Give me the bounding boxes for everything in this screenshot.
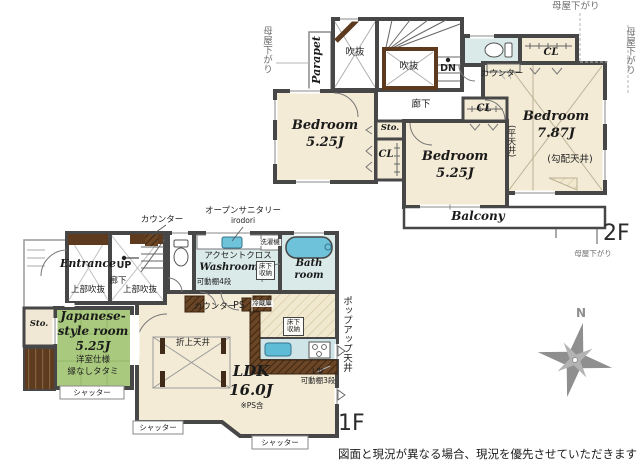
accent-cloth-label: アクセントクロス bbox=[204, 252, 272, 261]
open-sanitary-sub-label: irodori bbox=[231, 217, 255, 225]
toilet-icon-2f bbox=[485, 43, 512, 57]
l-shelf-label1: L型 bbox=[312, 368, 324, 376]
floor2-label: 2F bbox=[603, 222, 630, 245]
bedroom1-size: 5.25J bbox=[306, 136, 344, 150]
ldk-name: LDK bbox=[233, 364, 270, 380]
compass-north-label: N bbox=[576, 307, 586, 320]
l-shelf-label2: 可動棚3段 bbox=[301, 377, 336, 385]
bath-label2: room bbox=[294, 271, 323, 282]
void2-label: 吹抜 bbox=[399, 62, 418, 72]
bedroom3-size: 7.87J bbox=[537, 127, 575, 141]
sto-1f-label: Sto. bbox=[30, 320, 49, 329]
dn-label: DN bbox=[440, 64, 456, 74]
cl-mid-label: CL bbox=[477, 104, 492, 115]
shutter1-label: シャッター bbox=[73, 389, 111, 397]
washbasin-icon bbox=[222, 237, 242, 248]
compass-icon bbox=[530, 315, 620, 405]
counter-mid-label: カウンター bbox=[194, 303, 237, 312]
floorplan-canvas: 母屋下がり Parapet 吹抜 吹抜 DN 母屋下がり 母屋下がり CL カウ… bbox=[0, 0, 640, 466]
ldk-size: 16.0J bbox=[229, 383, 273, 399]
moya-right-label: 母屋下がり bbox=[624, 27, 634, 75]
moya-left-label: 母屋下がり bbox=[261, 26, 271, 74]
bedroom2-name: Bedroom bbox=[422, 150, 488, 164]
japanese-sub2: 縁なしタタミ bbox=[67, 368, 118, 377]
moya-bottom-label: 母屋下がり bbox=[574, 250, 612, 258]
open-sanitary-label: オープンサニタリー bbox=[205, 207, 281, 216]
bedroom3-name: Bedroom bbox=[523, 110, 589, 124]
japanese-sub1: 洋室仕様 bbox=[76, 356, 110, 365]
floor1-label: 1F bbox=[338, 412, 365, 435]
sloped-ceiling-label: (勾配天井) bbox=[547, 155, 592, 165]
parapet-label: Parapet bbox=[311, 36, 323, 84]
shelf4-label: 可動棚4段 bbox=[197, 278, 232, 286]
void-above2-label: 上部吹抜 bbox=[123, 286, 157, 295]
wood-deck bbox=[24, 348, 55, 390]
shutter2-label: シャッター bbox=[139, 424, 177, 432]
counter-top-box bbox=[145, 234, 158, 246]
counter-top-1f-label: カウンター bbox=[141, 216, 184, 225]
shutter3-label: シャッター bbox=[261, 439, 299, 447]
entrance-label: Entrance bbox=[60, 258, 116, 270]
up-label: UP bbox=[117, 261, 132, 271]
japanese-name1: Japanese- bbox=[60, 310, 125, 323]
fridge-label: 冷蔵庫 bbox=[251, 300, 273, 307]
ldk-note: ※PS含 bbox=[240, 402, 263, 410]
japanese-size: 5.25J bbox=[76, 340, 111, 353]
bedroom2-size: 5.25J bbox=[436, 167, 474, 181]
cl-top-label: CL bbox=[544, 48, 559, 59]
underfloor-storage2-label: 床下 収納 bbox=[283, 317, 304, 336]
void1-label: 吹抜 bbox=[345, 48, 364, 58]
bedroom1-name: Bedroom bbox=[292, 119, 358, 133]
kitchen-sink-icon bbox=[265, 343, 291, 356]
void-above1-label: 上部吹抜 bbox=[71, 286, 105, 295]
flat-ceiling-label: (平天井) bbox=[506, 125, 515, 157]
disclaimer-text: 図面と現況が異なる場合、現況を優先させていただきます bbox=[338, 446, 637, 462]
toilet-icon-1f bbox=[174, 240, 188, 266]
counter-2f-label: カウンター bbox=[481, 70, 524, 79]
hall-2f-label: 廊下 bbox=[411, 100, 430, 110]
bath-label1: Bath bbox=[296, 259, 323, 270]
room-bedroom2 bbox=[404, 121, 507, 207]
japanese-name2: style room bbox=[58, 325, 129, 338]
coffered-ceiling-label: 折上天井 bbox=[176, 339, 210, 348]
shoe-closet bbox=[68, 234, 108, 245]
ps-label: PS bbox=[233, 301, 245, 311]
washroom-label: Washroom bbox=[200, 263, 259, 274]
balcony-label: Balcony bbox=[451, 210, 504, 223]
underfloor-storage1-label: 床下 収納 bbox=[256, 261, 275, 280]
cl-left-label: CL bbox=[379, 150, 394, 161]
washer-label: 洗濯機 bbox=[259, 239, 281, 246]
sto-2f-label: Sto. bbox=[381, 124, 400, 133]
moya-top-label: 母屋下がり bbox=[552, 2, 600, 12]
stove-icon bbox=[309, 342, 330, 358]
popup-ceiling-label: ポップアップ天井 bbox=[341, 296, 351, 372]
